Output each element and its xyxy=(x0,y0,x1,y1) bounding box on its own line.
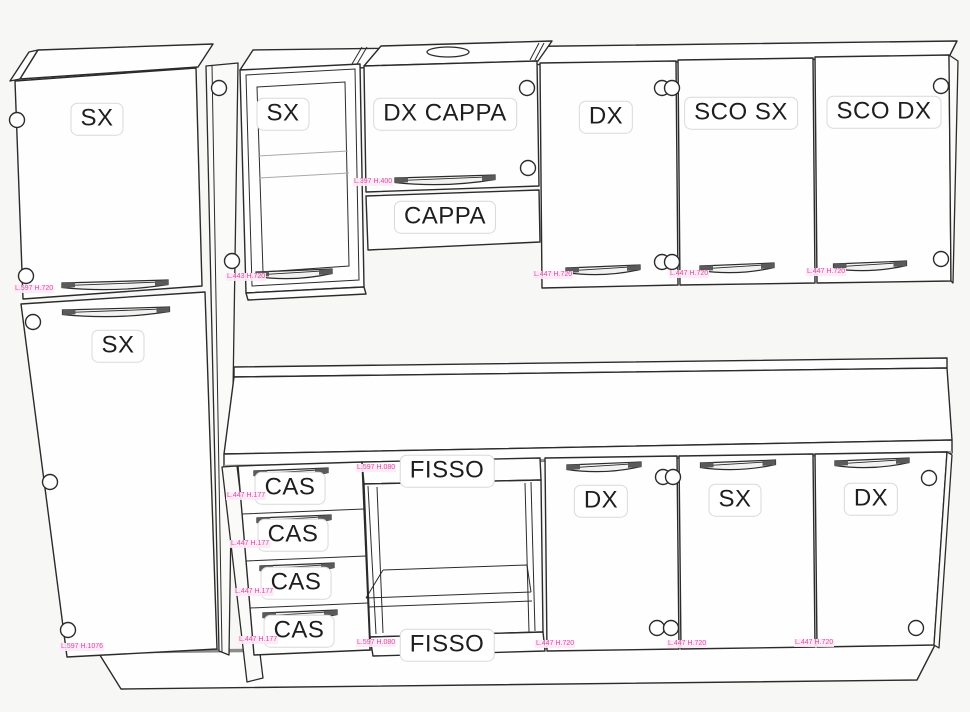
label-chip-wall-glass-door: SX xyxy=(256,98,309,131)
label-chip-wall-sco-dx-door: SCO DX xyxy=(826,96,941,129)
label-chip-base-dx-right: DX xyxy=(844,483,898,516)
label-chip-hood-panel: CAPPA xyxy=(394,201,496,234)
dim-hood-wall-door: L.397 H.400 xyxy=(353,178,393,186)
hinge-hole xyxy=(212,81,227,96)
label-chip-fixed-bottom: FISSO xyxy=(400,629,495,662)
dim-fixed-top: L.597 H.080 xyxy=(356,464,396,472)
kitchen-elevation-diagram: SX SX DX CAPPA DX SCO SX SCO DX CAPPA SX… xyxy=(0,0,970,712)
label-chip-base-sx: SX xyxy=(708,484,761,517)
dim-fixed-bottom: L.597 H.080 xyxy=(356,639,396,647)
label-chip-tall-lower-door: SX xyxy=(91,330,144,363)
hinge-hole xyxy=(43,475,58,490)
hinge-hole xyxy=(665,81,680,96)
hinge-hole xyxy=(521,161,536,176)
dim-drawer-4: L.447 H.177 xyxy=(238,636,278,644)
hinge-hole xyxy=(665,255,680,270)
hinge-hole xyxy=(922,471,937,486)
dim-base-sx: L.447 H.720 xyxy=(667,640,707,648)
dim-drawer-1: L.447 H.177 xyxy=(226,492,266,500)
hood-vent-hole xyxy=(427,47,469,57)
dim-base-dx-right: L.447 H.720 xyxy=(794,639,834,647)
label-chip-tall-upper-door: SX xyxy=(70,103,123,136)
label-chip-fixed-top: FISSO xyxy=(400,455,495,488)
dim-wall-dx-door: L.447 H.720 xyxy=(533,271,573,279)
hinge-hole xyxy=(225,254,240,269)
dim-tall-upper-door: L.597 H.720 xyxy=(14,285,54,293)
label-chip-wall-dx-door: DX xyxy=(579,101,633,134)
hinge-hole xyxy=(61,623,76,638)
hinge-hole xyxy=(934,252,949,267)
dim-wall-sco-sx-door: L.447 H.720 xyxy=(669,270,709,278)
hinge-hole xyxy=(26,315,41,330)
hinge-hole xyxy=(10,113,25,128)
label-chip-wall-sco-sx-door: SCO SX xyxy=(684,97,798,130)
dim-drawer-3: L.447 H.177 xyxy=(234,588,274,596)
wall-units-right xyxy=(540,55,958,288)
dim-drawer-2: L.447 H.177 xyxy=(230,540,270,548)
dim-base-dx-left: L.447 H.720 xyxy=(535,640,575,648)
hinge-hole xyxy=(666,470,681,485)
label-chip-base-dx-left: DX xyxy=(574,485,628,518)
dim-wall-glass-door: L.443 H.720 xyxy=(226,273,266,281)
dim-wall-sco-dx-door: L.447 H.720 xyxy=(806,268,846,276)
hinge-hole xyxy=(650,621,665,636)
hinge-hole xyxy=(909,621,924,636)
dim-tall-lower-door: L.597 H.1076 xyxy=(60,643,104,651)
hinge-hole xyxy=(19,269,34,284)
label-chip-hood-wall-door: DX CAPPA xyxy=(373,98,517,131)
hinge-hole xyxy=(934,79,949,94)
hinge-hole xyxy=(520,81,535,96)
countertop xyxy=(224,358,952,467)
hinge-hole xyxy=(664,621,679,636)
